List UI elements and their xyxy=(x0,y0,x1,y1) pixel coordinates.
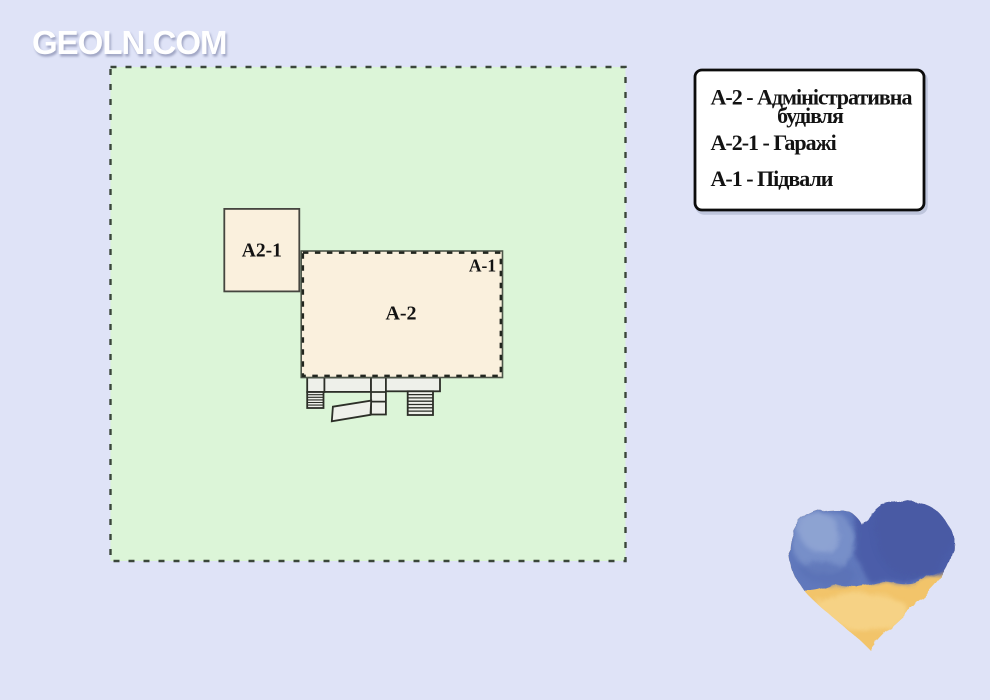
svg-text:A-1: A-1 xyxy=(469,256,496,276)
svg-text:A-2: A-2 xyxy=(385,303,416,325)
svg-text:А-2-1 - Гаражі: А-2-1 - Гаражі xyxy=(711,130,837,155)
svg-text:A2-1: A2-1 xyxy=(242,241,282,262)
svg-text:будівля: будівля xyxy=(777,103,844,128)
svg-text:А-1 - Підвали: А-1 - Підвали xyxy=(711,166,834,191)
